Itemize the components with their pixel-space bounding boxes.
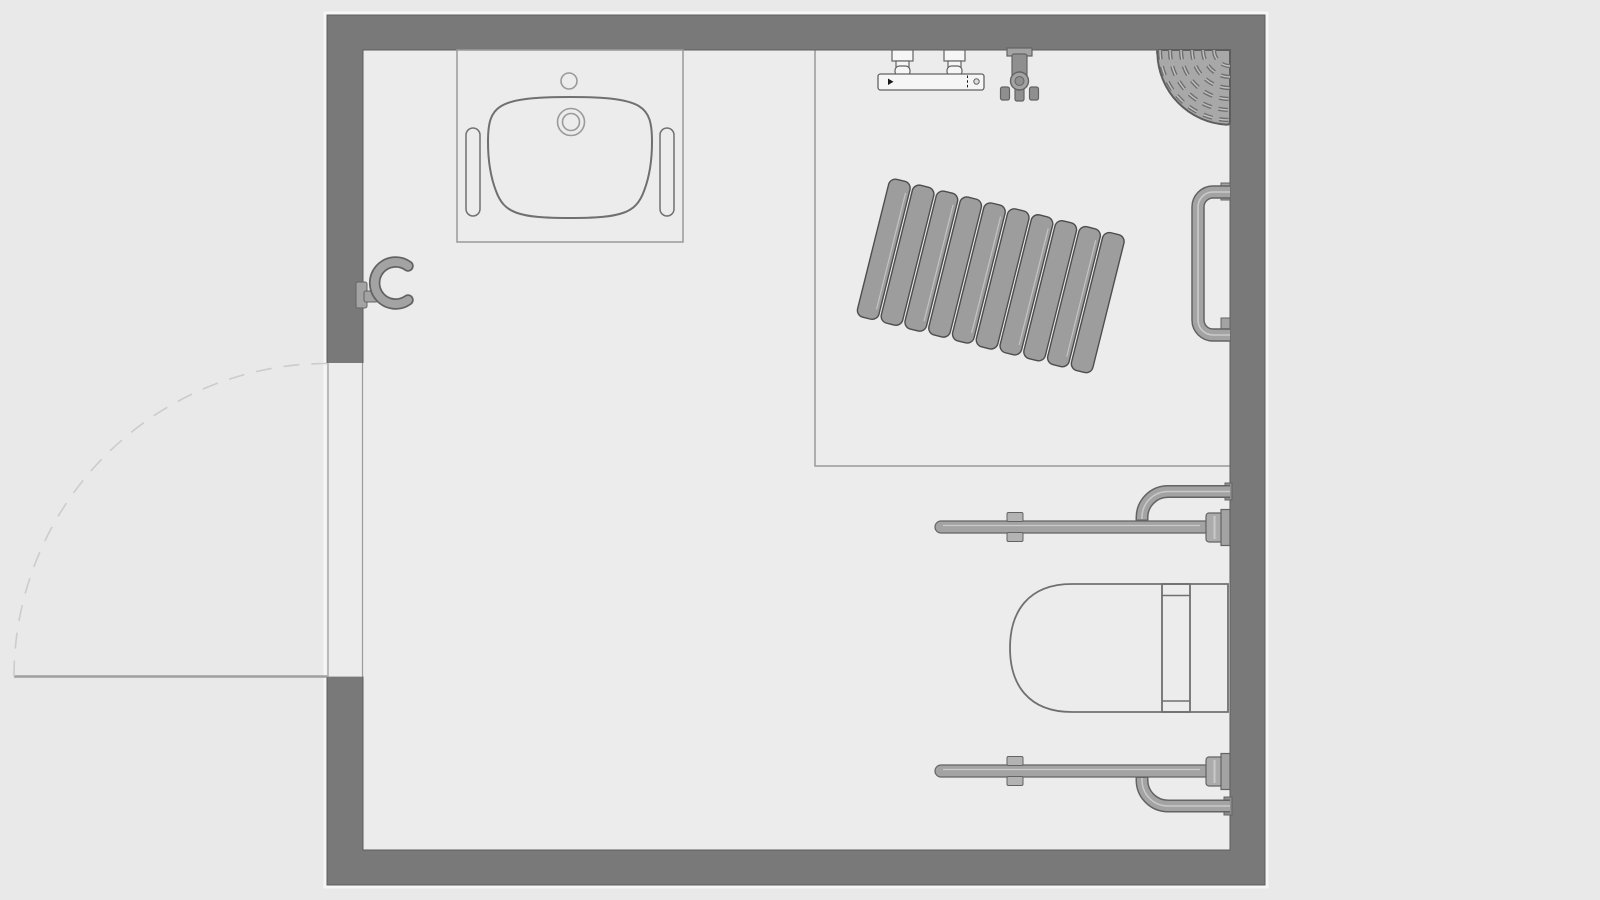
washbasin[interactable] [457,50,683,242]
rail-bar [935,521,1230,533]
basin-grab-rail-right [660,128,674,216]
rail-collar-bottom [1007,777,1023,786]
toilet[interactable] [1010,584,1228,712]
rail-bar [935,765,1230,777]
toilet-bowl [1010,584,1228,712]
basin-bowl [488,97,652,218]
holder-ring-inner [1015,77,1024,86]
holder-tab-right [1030,87,1039,100]
mixer-knob-dot [974,79,979,84]
mixer-pipe-flange-left [892,50,913,61]
door-swing-arc [14,364,327,677]
holder-tab-left [1001,87,1010,100]
mixer-pipe-flange-right [944,50,965,61]
rail-collar-top [1007,757,1023,766]
rail-collar-top [1007,513,1023,522]
mixer-valve-body [878,74,984,90]
door[interactable] [14,363,364,677]
door-opening [326,363,363,677]
floor-plan-canvas [0,0,1600,900]
basin-grab-rail-left [466,128,480,216]
rail-collar-bottom [1007,533,1023,542]
rail-wall-plate [1221,754,1230,790]
faucet-hole [561,73,577,89]
rail-wall-plate [1221,510,1230,546]
